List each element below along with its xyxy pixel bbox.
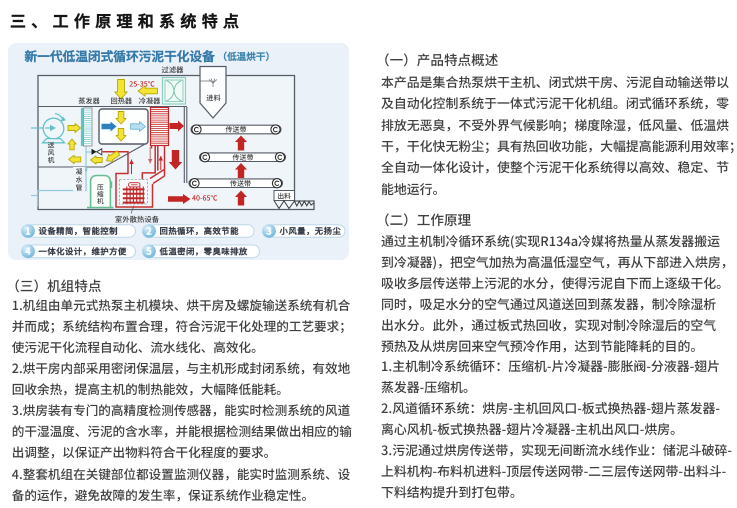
svg-text:传送带: 传送带 <box>230 179 251 189</box>
svg-text:进料: 进料 <box>206 94 220 104</box>
svg-text:回热循环，高效节能: 回热循环，高效节能 <box>160 225 240 237</box>
svg-text:3: 3 <box>266 223 272 237</box>
svg-text:2: 2 <box>146 223 152 237</box>
svg-text:一体化设计，维护方便: 一体化设计，维护方便 <box>39 245 127 257</box>
svg-text:1: 1 <box>25 223 30 237</box>
svg-text:传送带: 传送带 <box>226 125 247 135</box>
svg-text:过滤器: 过滤器 <box>162 66 185 76</box>
svg-text:管: 管 <box>76 182 83 192</box>
svg-text:40-65℃: 40-65℃ <box>192 194 217 204</box>
svg-text:回热器: 回热器 <box>111 96 133 106</box>
svg-text:小风量，无扬尘: 小风量，无扬尘 <box>279 225 342 237</box>
svg-text:室外散热设备: 室外散热设备 <box>115 214 160 225</box>
svg-text:机: 机 <box>48 155 55 165</box>
svg-text:低温密闭，零臭味排放: 低温密闭，零臭味排放 <box>159 245 248 257</box>
svg-text:蒸发器: 蒸发器 <box>78 96 100 106</box>
svg-text:设备精简，智能控制: 设备精简，智能控制 <box>39 225 118 237</box>
svg-text:（低温烘干）: （低温烘干） <box>218 49 276 63</box>
svg-text:5: 5 <box>145 244 152 258</box>
svg-text:冷凝器: 冷凝器 <box>139 96 161 106</box>
svg-text:4: 4 <box>24 244 31 258</box>
svg-text:出料: 出料 <box>277 190 291 200</box>
svg-text:传送带: 传送带 <box>233 153 254 163</box>
svg-text:新一代低温闭式循环污泥干化设备: 新一代低温闭式循环污泥干化设备 <box>25 46 216 65</box>
svg-text:机: 机 <box>97 195 104 205</box>
